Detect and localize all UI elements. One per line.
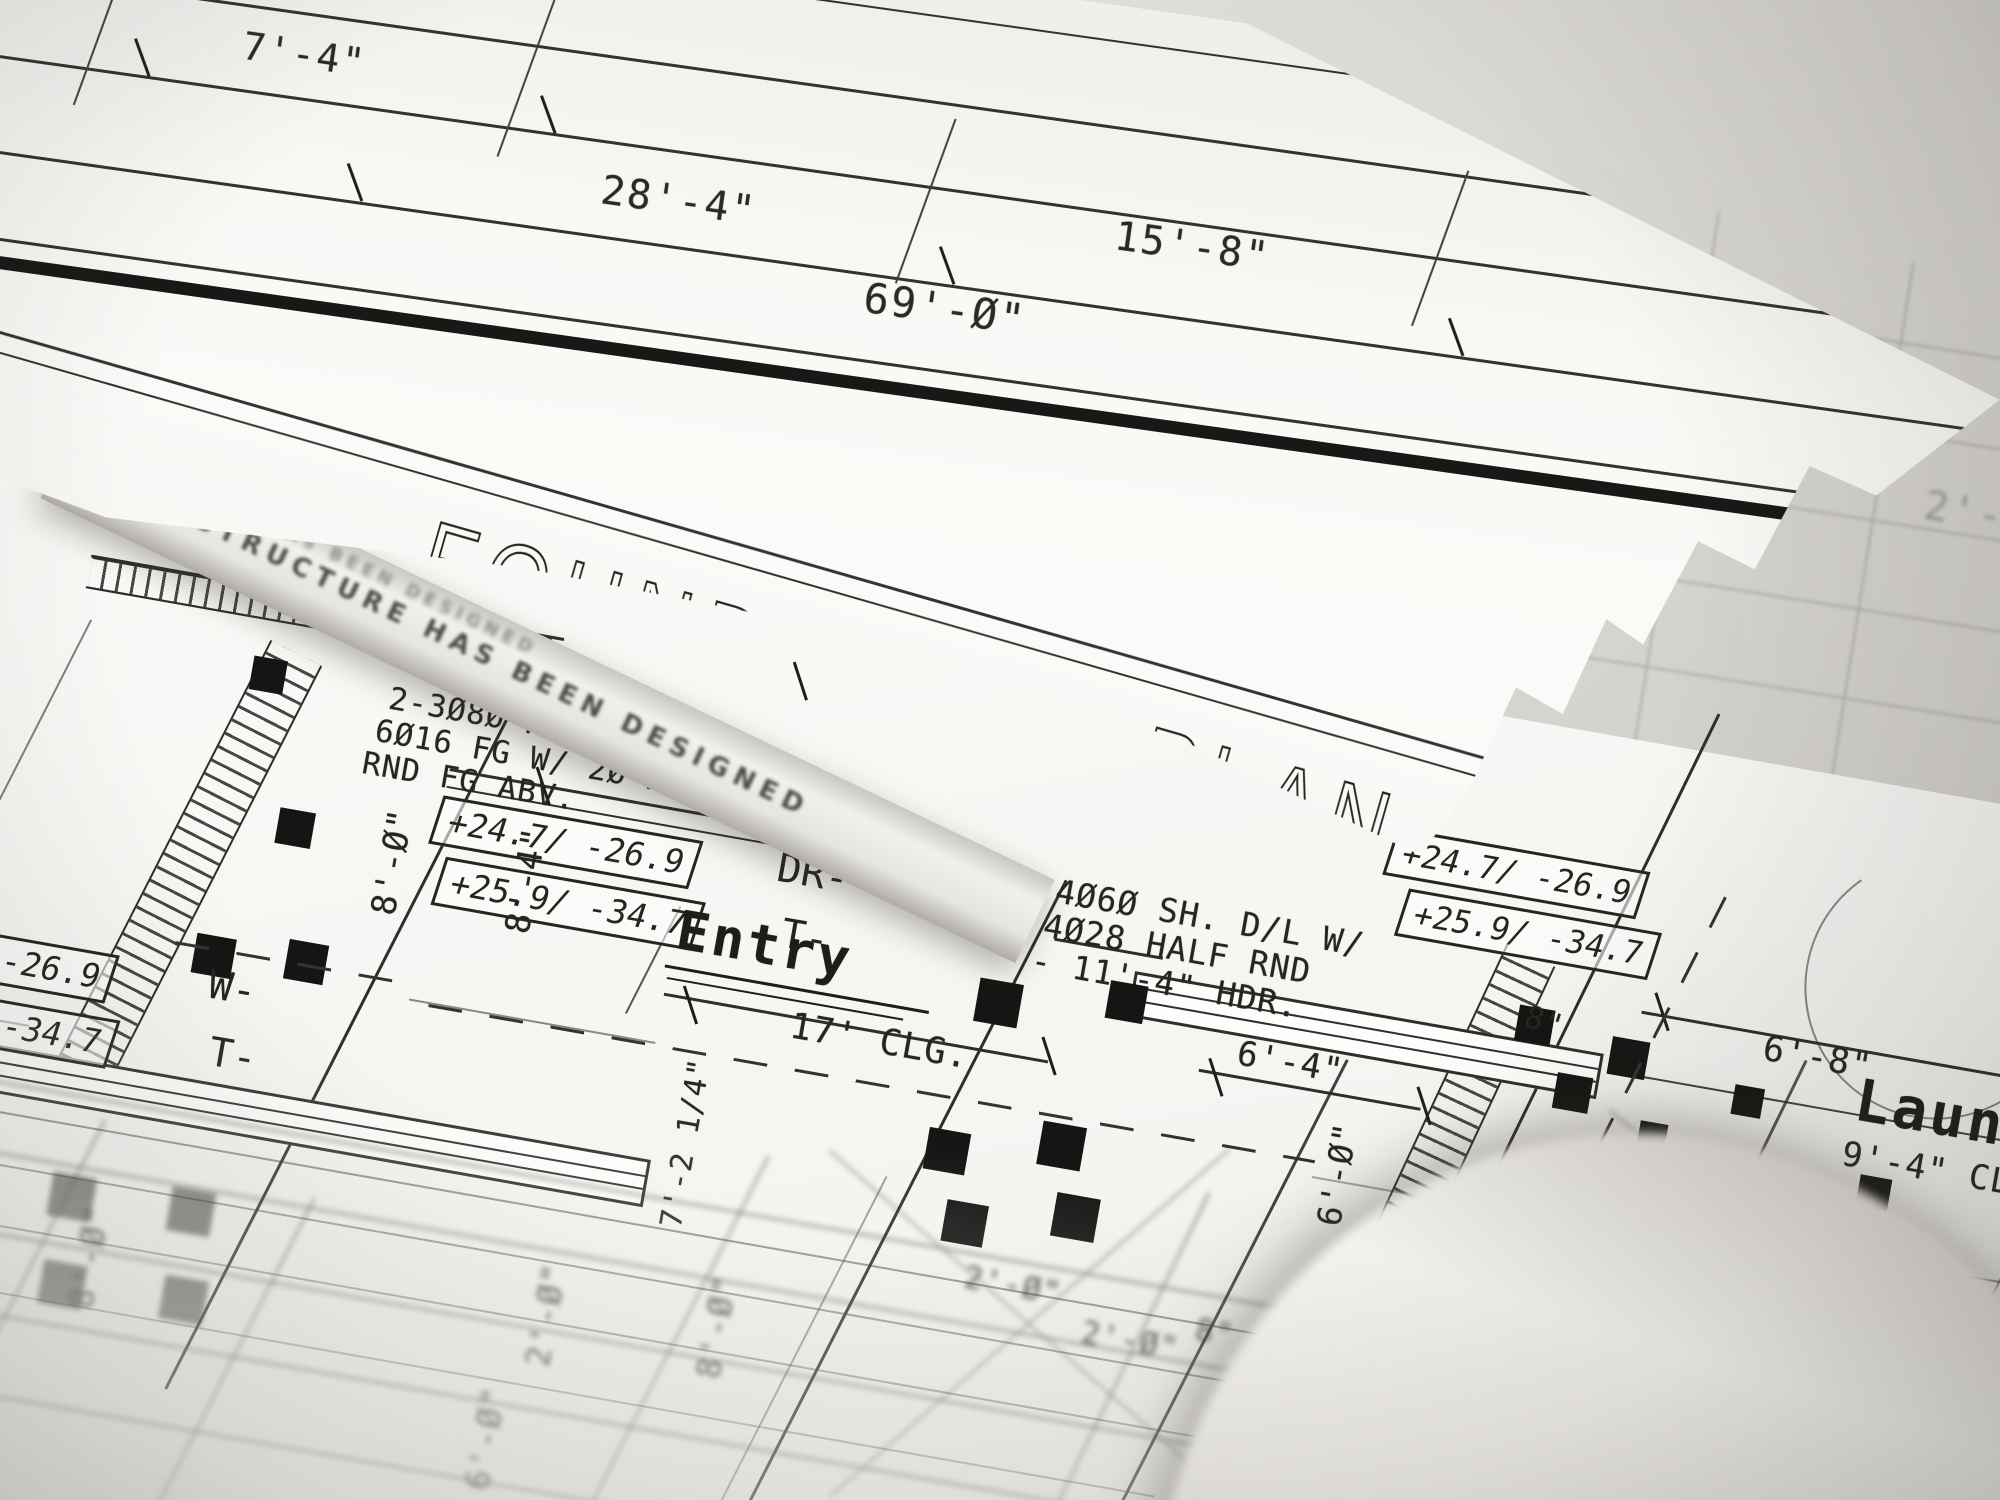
pier-square-blurred [46,1171,97,1222]
plan-blur-line [0,1051,1309,1314]
pier-square-blurred [158,1274,209,1325]
extension-line [1411,170,1469,326]
dimension-tick [540,95,556,134]
extension-line [73,0,171,105]
plan-blur-line-vertical [577,1155,770,1500]
dim-7-4-top: 7'-4" [240,24,369,85]
dimension-tick [134,38,150,77]
plan-blur-line-vertical [141,1197,316,1500]
extension-line [895,119,957,284]
pier-square-blurred [165,1186,216,1237]
dim-69-0: 69'-Ø" [861,273,1030,344]
roll-grid-line [0,23,2000,401]
roll-linework [0,0,2000,196]
dim-15-8: 15'-8" [1112,213,1273,280]
dimension-tick [347,163,363,202]
pier-square-blurred [37,1259,88,1310]
blueprint-photo: 2'-8 HT. 2-3Ø8Ø FR DRS & 6Ø16 FG W/ 2Ø H… [0,0,2000,1500]
plan-blur-line [0,1381,1294,1500]
dimension-tick [1448,318,1464,357]
dim-28-4: 28'-4" [598,167,759,234]
dim-f7: 8" [1193,1312,1237,1353]
dim-f2: 2'-Ø" [518,1260,575,1370]
dimension-tick [939,246,955,285]
diagonal-brace-line [829,1150,1232,1500]
background-dim-text: 2'-8 [1921,483,2000,545]
